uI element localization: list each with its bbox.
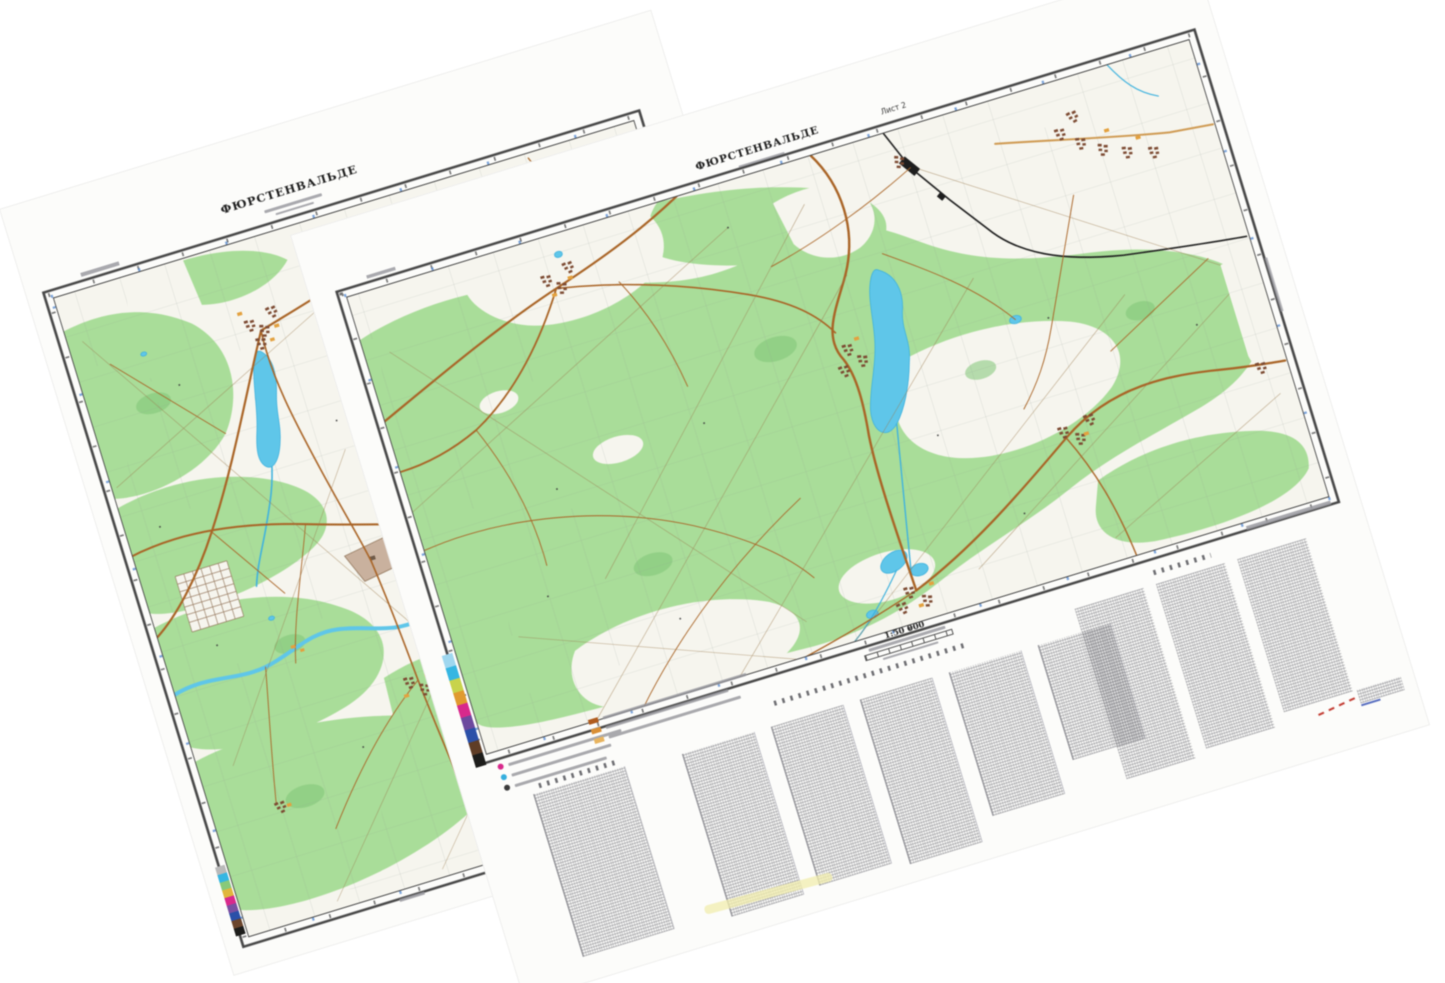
legend-symbol <box>591 727 602 735</box>
legend-symbol <box>588 717 599 725</box>
legend-symbol <box>497 763 504 770</box>
legend-symbol <box>500 773 507 780</box>
scanned-maps-canvas: ФЮРСТЕНВАЛЬДЕ <box>0 0 1445 983</box>
